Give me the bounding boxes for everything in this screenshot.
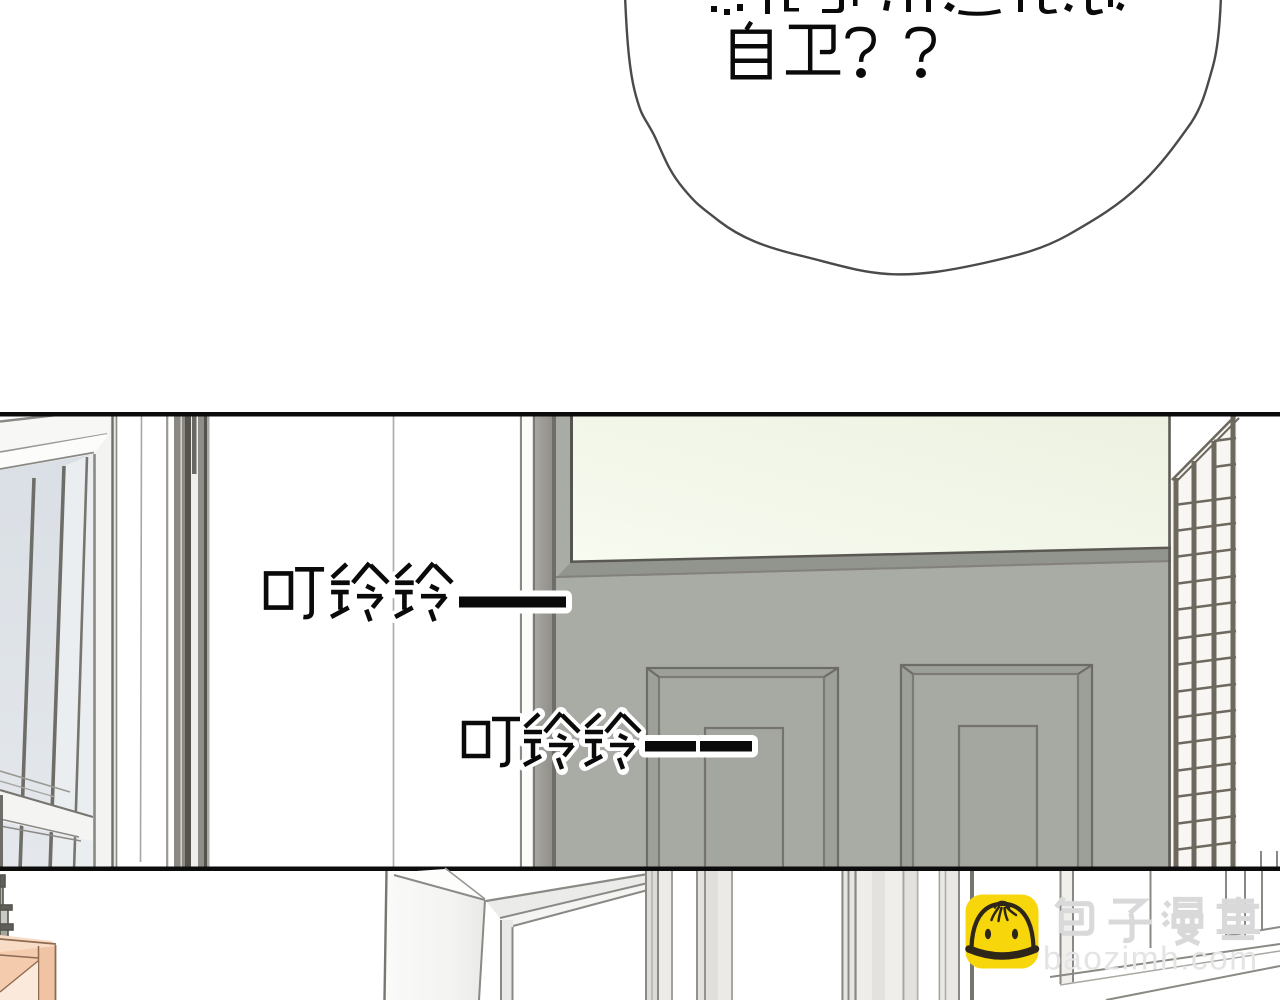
svg-text:baozimh.com: baozimh.com — [1043, 941, 1259, 978]
